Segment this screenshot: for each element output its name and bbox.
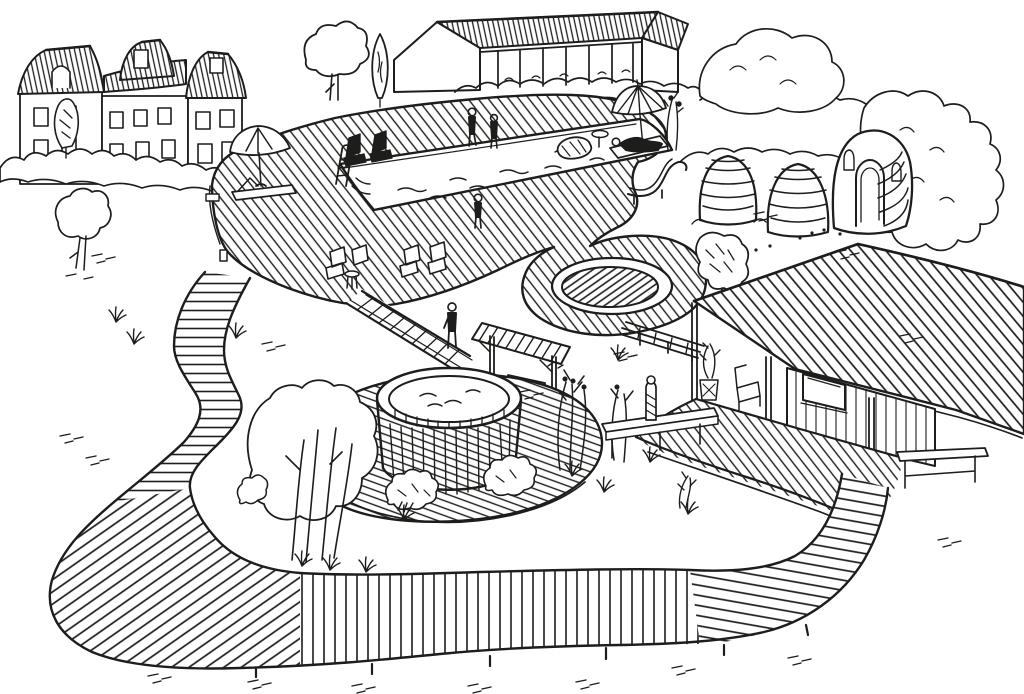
big-tree-behind-barn bbox=[699, 29, 843, 114]
round-stool bbox=[345, 271, 359, 289]
sauna-dome-large bbox=[768, 164, 829, 237]
sauna-back-hedge bbox=[680, 148, 844, 162]
porch-chair bbox=[735, 365, 760, 412]
round-tree bbox=[304, 21, 369, 100]
plunge-pool bbox=[552, 258, 672, 314]
manor-dormer-center bbox=[134, 50, 148, 68]
small-lawn-tree bbox=[56, 189, 111, 279]
sketch-canvas bbox=[0, 0, 1024, 694]
porch-planter bbox=[700, 343, 720, 400]
deck-bollard bbox=[220, 250, 227, 261]
flower-stalks bbox=[664, 92, 683, 150]
manor-dormer-arch bbox=[52, 66, 70, 88]
garden-bench bbox=[897, 448, 988, 488]
side-table bbox=[206, 194, 219, 201]
sketch bbox=[0, 0, 1024, 694]
carved-post bbox=[646, 376, 656, 420]
multi-stem-tree bbox=[237, 380, 377, 562]
mushroom-table bbox=[592, 131, 608, 138]
pond-rock bbox=[558, 137, 592, 159]
barn-pavilion bbox=[394, 12, 688, 92]
manor-dormer-right bbox=[210, 58, 223, 73]
cypress-tree bbox=[372, 34, 388, 107]
